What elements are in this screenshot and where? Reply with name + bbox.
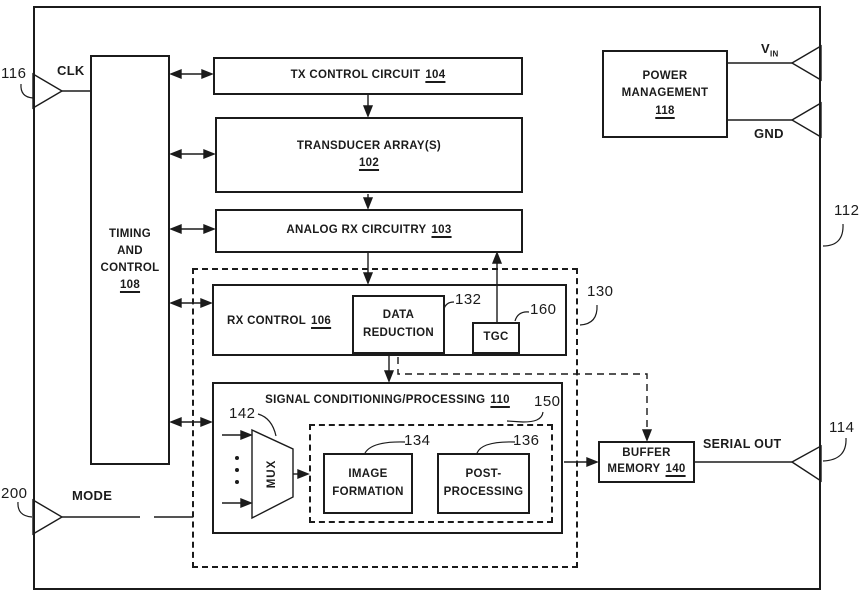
clk-input-connector — [33, 74, 90, 108]
power-management-label-1: POWER — [643, 68, 688, 85]
timing-ref: 108 — [120, 279, 140, 291]
timing-label-2: AND — [117, 243, 143, 260]
tx-to-transducer-arrow — [364, 95, 372, 116]
ref-134: 134 — [404, 432, 431, 449]
timing-transducer-bus — [171, 150, 214, 158]
vin-base: V — [761, 41, 770, 56]
gnd-port-label: GND — [754, 126, 784, 141]
patent-figure: TIMING AND CONTROL 108 TX CONTROL CIRCUI… — [0, 0, 859, 599]
buffer-memory-label-1: BUFFER — [622, 446, 670, 462]
power-management-label-2: MANAGEMENT — [622, 85, 709, 102]
mux-label: MUX — [250, 453, 294, 495]
block-tx-control: TX CONTROL CIRCUIT104 — [213, 57, 523, 95]
ref-150: 150 — [534, 393, 561, 410]
data-reduction-label-2: REDUCTION — [363, 325, 434, 342]
serial-out-port-label: SERIAL OUT — [703, 437, 781, 451]
block-tgc: TGC — [472, 322, 520, 354]
post-processing-label-1: POST- — [465, 466, 501, 483]
ref-132: 132 — [455, 291, 482, 308]
block-image-formation: IMAGE FORMATION — [323, 453, 413, 514]
signal-processing-label: SIGNAL CONDITIONING/PROCESSING — [265, 394, 485, 406]
vin-port-label: VIN — [761, 41, 779, 59]
rx-control-label: RX CONTROL — [227, 315, 306, 327]
tgc-label: TGC — [483, 329, 508, 346]
ref-130: 130 — [587, 283, 614, 300]
timing-label-3: CONTROL — [101, 260, 160, 277]
block-power-management: POWER MANAGEMENT 118 — [602, 50, 728, 138]
ref-114: 114 — [829, 419, 854, 436]
block-analog-rx: ANALOG RX CIRCUITRY103 — [215, 209, 523, 253]
transducer-label: TRANSDUCER ARRAY(S) — [297, 138, 441, 155]
analog-rx-label: ANALOG RX CIRCUITRY — [286, 224, 426, 236]
transducer-ref: 102 — [359, 157, 379, 169]
block-buffer-memory: BUFFER MEMORY140 — [598, 441, 695, 483]
buffer-memory-label-2: MEMORY — [607, 463, 660, 475]
image-formation-label-1: IMAGE — [348, 466, 387, 483]
timing-analog-rx-bus — [171, 225, 214, 233]
rx-control-ref: 106 — [311, 315, 331, 327]
buffer-memory-ref: 140 — [666, 463, 686, 475]
ref-136: 136 — [513, 432, 540, 449]
power-management-ref: 118 — [655, 105, 674, 117]
block-data-reduction: DATA REDUCTION — [352, 295, 445, 354]
mode-port-label: MODE — [72, 488, 112, 503]
block-post-processing: POST- PROCESSING — [437, 453, 530, 514]
block-transducer-array: TRANSDUCER ARRAY(S) 102 — [215, 117, 523, 193]
tx-control-label: TX CONTROL CIRCUIT — [291, 69, 421, 81]
signal-processing-ref: 110 — [490, 394, 509, 406]
block-timing-control: TIMING AND CONTROL 108 — [90, 55, 170, 465]
image-formation-label-2: FORMATION — [332, 484, 403, 501]
ref-116: 116 — [1, 65, 26, 82]
timing-tx-bus — [171, 70, 212, 78]
post-processing-label-2: PROCESSING — [444, 484, 524, 501]
mode-input-connector — [33, 500, 193, 534]
serial-out-connector — [695, 446, 821, 481]
clk-port-label: CLK — [57, 63, 85, 78]
ref-112: 112 — [834, 202, 859, 219]
data-reduction-label-1: DATA — [383, 307, 414, 324]
transducer-to-analog-arrow — [364, 194, 372, 208]
tx-control-ref: 104 — [425, 69, 445, 81]
ref-160: 160 — [530, 301, 557, 318]
timing-label-1: TIMING — [109, 226, 151, 243]
vin-sub: IN — [770, 50, 779, 59]
analog-rx-ref: 103 — [431, 224, 451, 236]
ref-142: 142 — [229, 405, 256, 422]
ref-200: 200 — [1, 485, 28, 502]
